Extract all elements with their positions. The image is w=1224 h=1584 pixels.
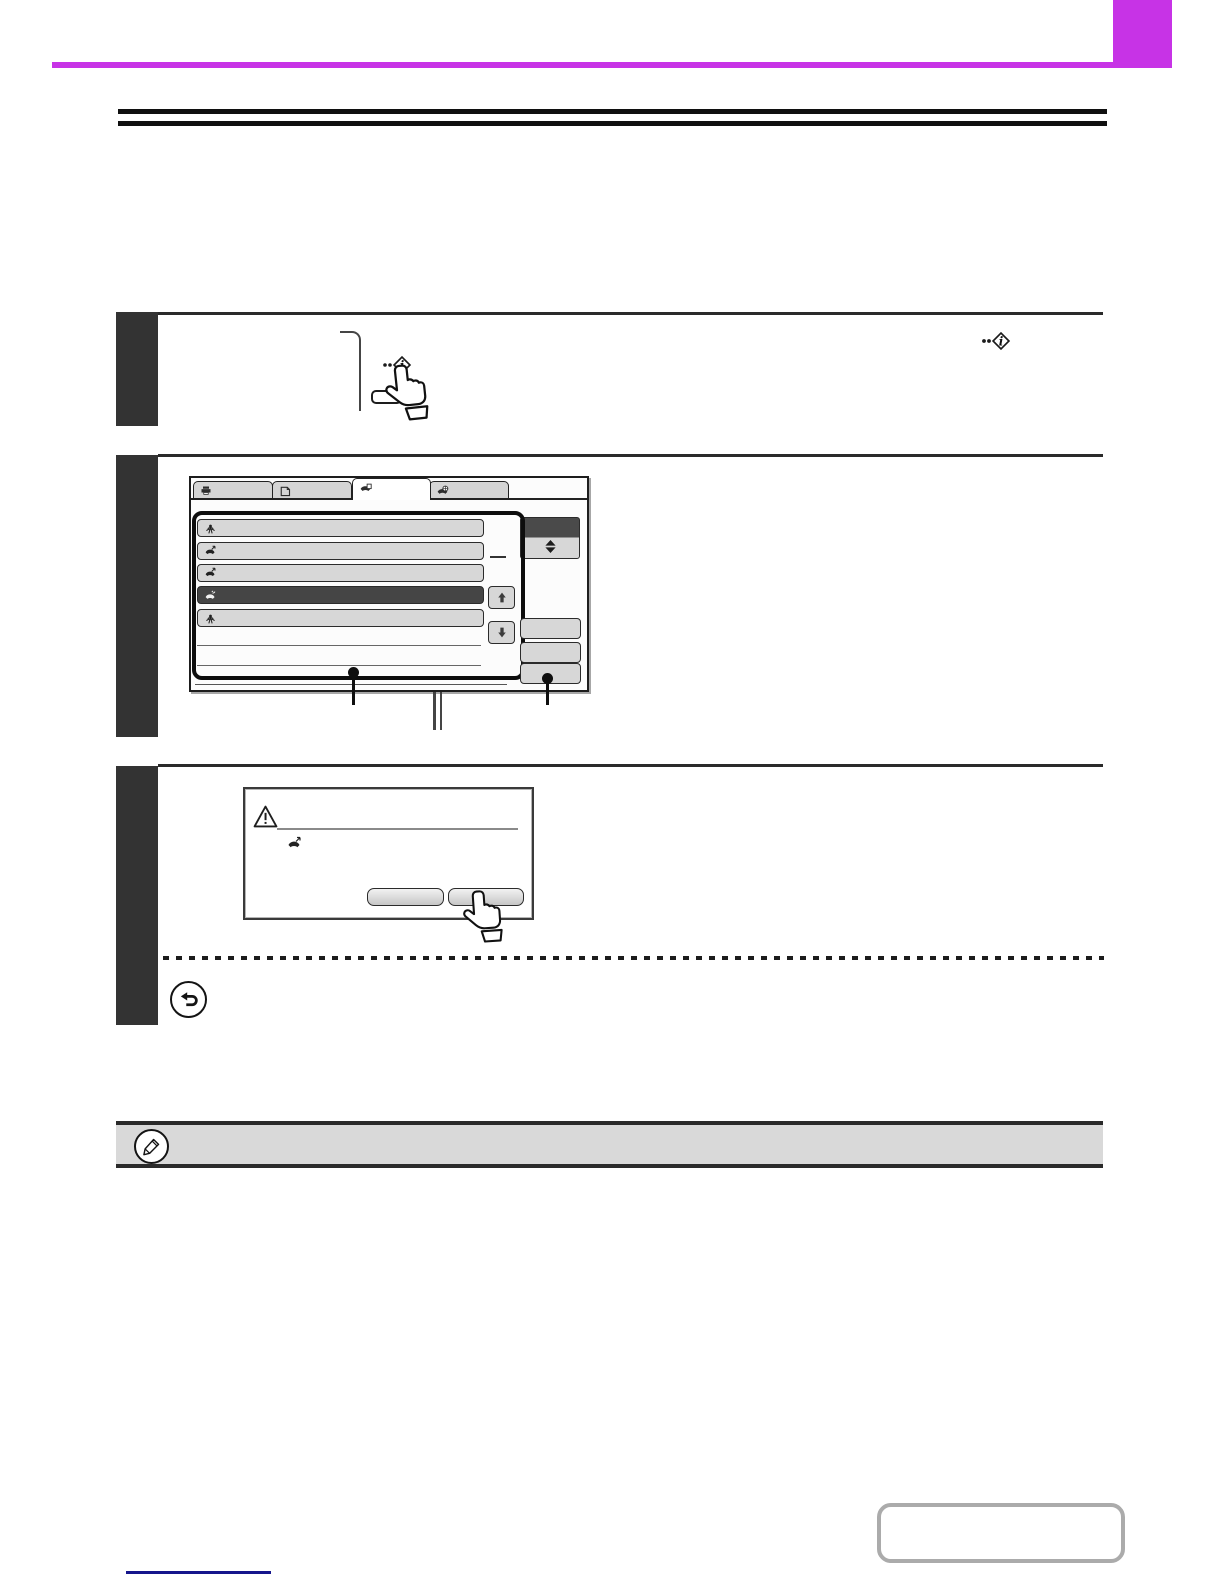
scroll-up-button [488, 586, 515, 609]
scan-send-icon [279, 485, 291, 497]
svg-text:i: i [999, 335, 1004, 349]
step-2-rule [158, 454, 1103, 457]
step-2-number-bar [116, 455, 158, 737]
operation-panel-sketch: i [330, 320, 460, 430]
sort-toggle-button [520, 517, 580, 559]
tab-scan-send [272, 481, 352, 499]
outgoing-call-icon [286, 836, 303, 852]
title-rule-bottom [118, 121, 1107, 126]
dialog-button-left [367, 888, 444, 906]
scroll-down-button [488, 621, 515, 644]
tab-fax-job [352, 478, 431, 500]
printer-icon [200, 485, 212, 497]
manual-page: i i [0, 0, 1224, 1584]
dashed-divider [163, 956, 1104, 960]
job-row-4-selected [197, 586, 484, 604]
callout-line [546, 678, 550, 705]
panel-edge-bracket [340, 331, 361, 411]
arrow-up-icon [496, 591, 508, 604]
job-row-2 [197, 542, 484, 560]
note-band [116, 1125, 1103, 1164]
title-rule-top [118, 109, 1107, 114]
warning-triangle-icon [253, 805, 278, 828]
contents-button[interactable] [877, 1503, 1125, 1563]
step-1-number-bar [116, 312, 158, 426]
broadcast-icon [204, 522, 217, 535]
note-bottom-border [116, 1164, 1103, 1168]
fax-job-icon [359, 483, 372, 495]
double-triangle-icon [544, 539, 557, 554]
empty-row-separator [197, 665, 481, 666]
step-1-rule [158, 312, 1103, 315]
callout-line [352, 672, 356, 705]
return-arrow-icon [170, 981, 207, 1018]
footer-link-underline[interactable] [126, 1571, 271, 1574]
broadcast-icon [204, 612, 217, 625]
arrow-down-icon [496, 626, 508, 639]
tab-printer [193, 481, 273, 499]
hand-pointer-icon [379, 360, 441, 428]
header-accent-block [1113, 0, 1172, 68]
side-button-2 [520, 642, 581, 663]
job-row-5 [197, 609, 484, 627]
header-accent-bar [52, 62, 1172, 68]
tab-internet-fax [429, 481, 509, 499]
outgoing-call-icon [204, 567, 217, 580]
outgoing-call-icon [204, 545, 217, 558]
pencil-icon [134, 1129, 169, 1164]
job-row-3 [197, 564, 484, 582]
side-button-1 [520, 618, 581, 639]
internet-fax-icon [436, 485, 449, 497]
job-row-1 [197, 519, 484, 537]
step-3-number-bar [116, 766, 158, 1025]
info-diamond-icon: i [978, 326, 1018, 356]
touch-panel-screenshot [189, 476, 589, 692]
step-3-rule [158, 764, 1103, 767]
empty-row-separator [197, 645, 481, 646]
dialog-message-line [277, 828, 518, 830]
speaker-call-icon [204, 589, 217, 602]
hand-pointer-icon [458, 887, 514, 948]
